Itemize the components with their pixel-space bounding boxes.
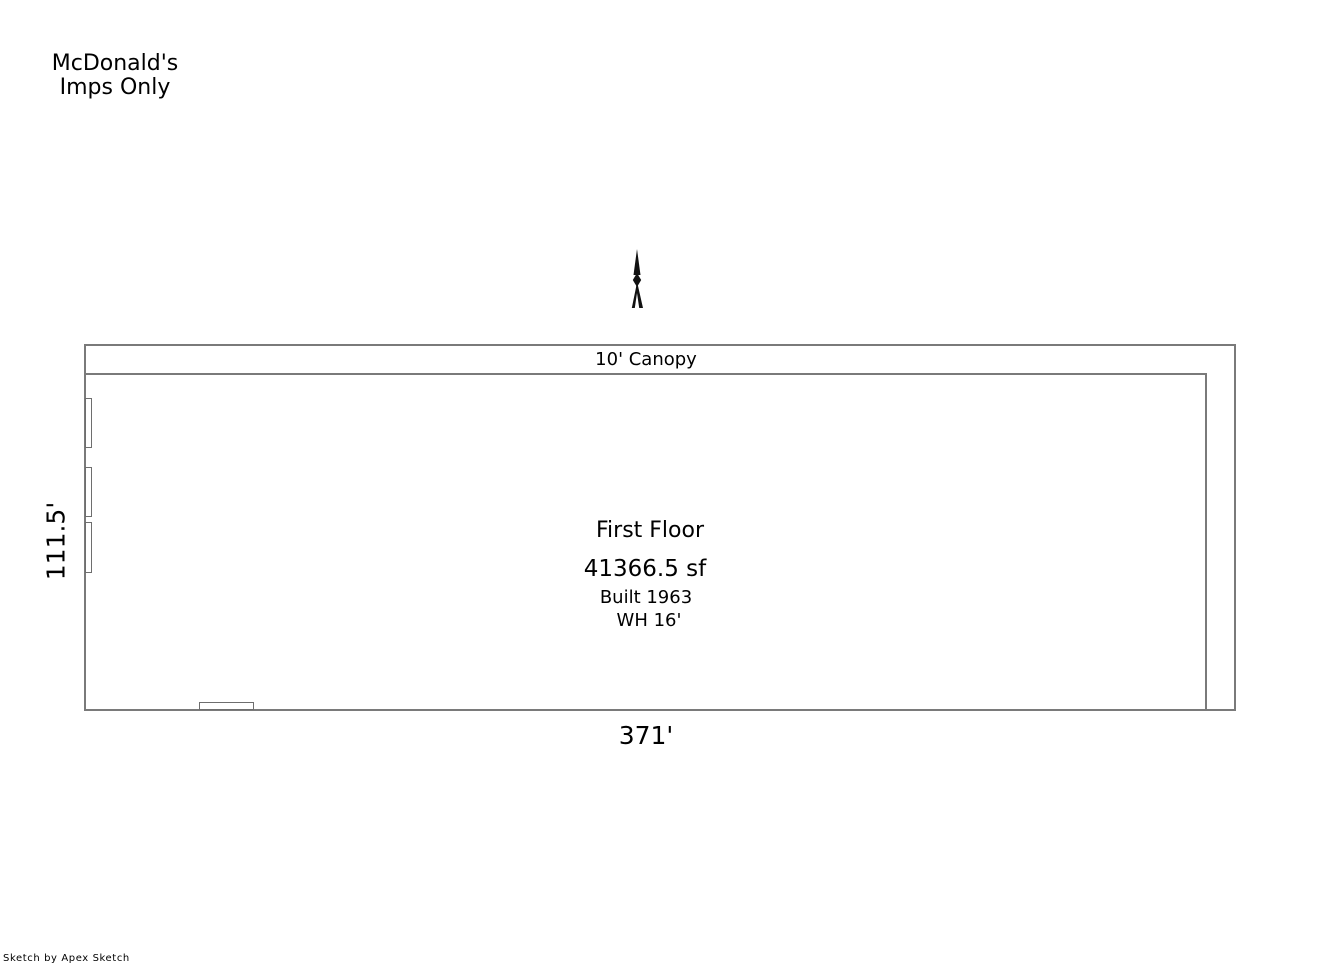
watermark-text: Sketch by Apex Sketch — [3, 953, 130, 964]
north-arrow-icon — [628, 249, 646, 309]
area-title-label: First Floor — [596, 518, 704, 543]
door-marker-left-1 — [85, 398, 92, 448]
sketch-canvas: McDonald's Imps Only 10' Canopy First Fl… — [0, 0, 1321, 969]
door-marker-left-3 — [85, 522, 92, 573]
door-marker-left-2 — [85, 467, 92, 517]
sketch-title: McDonald's Imps Only — [48, 52, 182, 100]
area-size-label: 41366.5 sf — [584, 556, 707, 582]
wall-height-label: WH 16' — [617, 610, 682, 631]
sketch-title-line2: Imps Only — [48, 76, 182, 100]
dimension-bottom-label: 371' — [619, 721, 674, 750]
canopy-wall-top — [86, 373, 1207, 375]
door-marker-bottom — [199, 702, 254, 710]
dimension-left-label: 111.5' — [42, 502, 71, 580]
built-year-label: Built 1963 — [600, 587, 692, 608]
canopy-label: 10' Canopy — [595, 349, 697, 370]
sketch-title-line1: McDonald's — [48, 52, 182, 76]
canopy-wall-right — [1205, 373, 1207, 709]
